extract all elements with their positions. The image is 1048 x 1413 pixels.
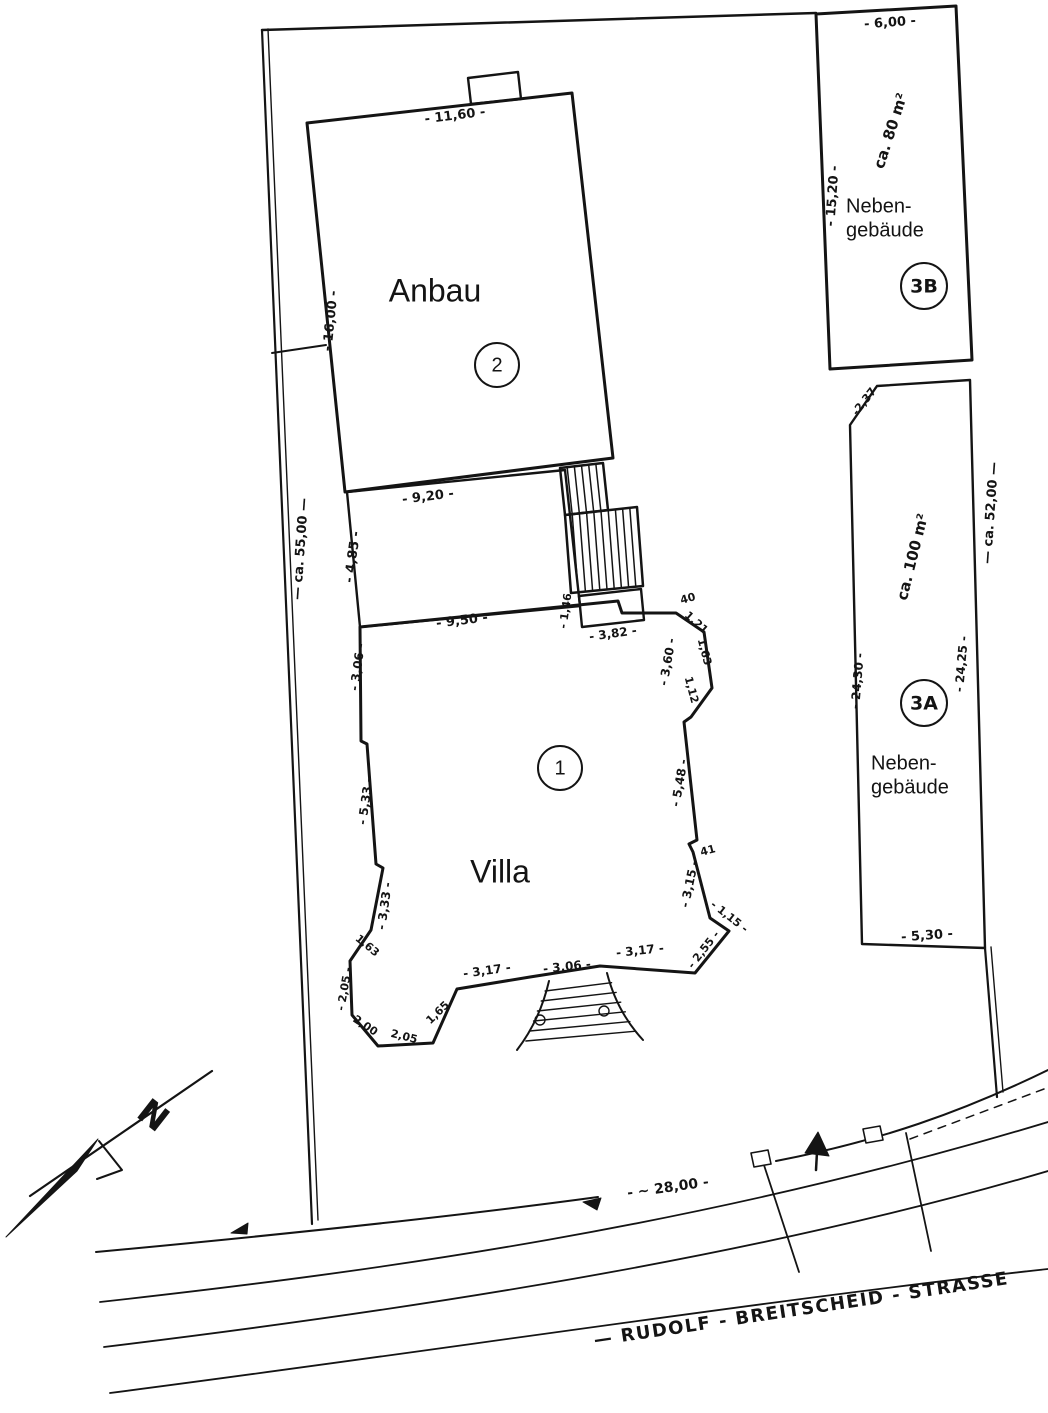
dim-notch-41: 41 bbox=[699, 842, 717, 859]
label-villa: Villa bbox=[470, 853, 530, 889]
dim-boundary-55: — ca. 55,00 — bbox=[290, 498, 312, 601]
dim-bay-163: 1,63 bbox=[695, 637, 715, 667]
street-line-2 bbox=[100, 1122, 1048, 1302]
anbau-chimney bbox=[468, 72, 521, 104]
name-3a-line1: Neben- bbox=[871, 752, 937, 774]
site-plan-canvas: AnbauVilla213B3A- 11,60 -- 16,00 -- 9,20… bbox=[0, 0, 1048, 1413]
dim-bay-112: 1,12 bbox=[682, 675, 702, 705]
name-3b-line1: Neben- bbox=[846, 195, 912, 217]
stair-ramp-lower bbox=[565, 507, 643, 593]
dim-3b-top: - 6,00 - bbox=[864, 14, 917, 33]
north-arrow-head bbox=[6, 1139, 98, 1237]
name-3a-line2: gebäude bbox=[871, 776, 949, 798]
dim-28-arrow-left bbox=[231, 1223, 248, 1234]
entrance-arrow-driveway-stem bbox=[816, 1152, 817, 1170]
north-letter: N bbox=[129, 1091, 176, 1140]
street-name: — RUDOLF - BREITSCHEID - STRASSE bbox=[592, 1268, 1010, 1351]
dim-wall-333: - 3,33 - bbox=[374, 881, 395, 930]
dim-bay-360: - 3,60 - bbox=[656, 637, 678, 687]
boundary-right-lower-inner bbox=[991, 947, 1003, 1092]
circle-number-3a: 3A bbox=[910, 693, 938, 715]
circle-number-1: 1 bbox=[554, 757, 565, 779]
gate-post-right bbox=[863, 1126, 883, 1143]
name-3b-line2: gebäude bbox=[846, 219, 924, 241]
area-3a: ca. 100 m² bbox=[893, 512, 932, 602]
dim-bay-40: 40 bbox=[679, 590, 697, 607]
street-line-3 bbox=[104, 1171, 1048, 1347]
dim-bottom-317-left: - 3,17 - bbox=[462, 960, 511, 981]
dim-wall-306: - 3,06 - bbox=[347, 642, 368, 691]
dim-wall-315: - 3,15 - bbox=[678, 859, 702, 909]
site-plan-page: AnbauVilla213B3A- 11,60 -- 16,00 -- 9,20… bbox=[0, 0, 1048, 1413]
dim-stair-side: - 1,46 bbox=[557, 592, 575, 629]
driveway-left-edge bbox=[762, 1159, 799, 1272]
boundary-left-inner bbox=[268, 29, 318, 1220]
dim-3a-bottom: - 5,30 - bbox=[901, 927, 954, 946]
boundary-top bbox=[262, 13, 816, 30]
connector-outline bbox=[347, 470, 580, 627]
boundary-left-tick bbox=[272, 345, 326, 353]
entrance-stairs bbox=[526, 983, 635, 1041]
circle-number-2: 2 bbox=[491, 354, 502, 376]
dim-bottom-317-right: - 3,17 - bbox=[615, 941, 664, 960]
dim-bay-121: 1,21 bbox=[682, 609, 711, 637]
label-anbau: Anbau bbox=[389, 272, 482, 308]
dim-connector-top: - 9,20 - bbox=[401, 486, 454, 507]
dim-3b-left: - 15,20 - bbox=[823, 165, 842, 227]
boundary-left-outer bbox=[262, 30, 312, 1224]
dim-villa-right-548: - 5,48 - bbox=[668, 758, 690, 808]
dim-villa-top: - 9,50 - bbox=[435, 610, 488, 631]
dim-chamfer-237: -2,37- bbox=[849, 381, 882, 418]
driveway-right-edge bbox=[906, 1133, 931, 1251]
circle-number-3b: 3B bbox=[910, 276, 938, 298]
entrance-stairs-right-rail bbox=[607, 973, 643, 1040]
gate-post-left bbox=[751, 1150, 771, 1167]
dim-connector-left: - 4,85 - bbox=[342, 530, 364, 584]
dim-oct-200: 2,00 bbox=[350, 1013, 380, 1039]
dim-3a-left: - 24,30 - bbox=[848, 652, 867, 709]
north-arrow-shaft bbox=[30, 1071, 212, 1196]
area-3b: ca. 80 m² bbox=[870, 91, 911, 171]
dim-boundary-52: — ca. 52,00 — bbox=[980, 462, 1002, 565]
dim-street-frontage: - ~ 28,00 - bbox=[626, 1174, 710, 1201]
dim-entrance-306: - 3,06 - bbox=[542, 957, 591, 976]
stair-landing bbox=[579, 589, 644, 627]
dim-28-arrow-right bbox=[583, 1198, 601, 1210]
street-dashed-line bbox=[910, 1089, 1044, 1139]
dim-anbau-left: - 16,00 - bbox=[320, 290, 341, 352]
dim-3a-right: - 24,25 - bbox=[952, 635, 971, 692]
dim-oct-163: 1,63 bbox=[353, 932, 382, 959]
boundary-right-lower-outer bbox=[985, 948, 997, 1097]
